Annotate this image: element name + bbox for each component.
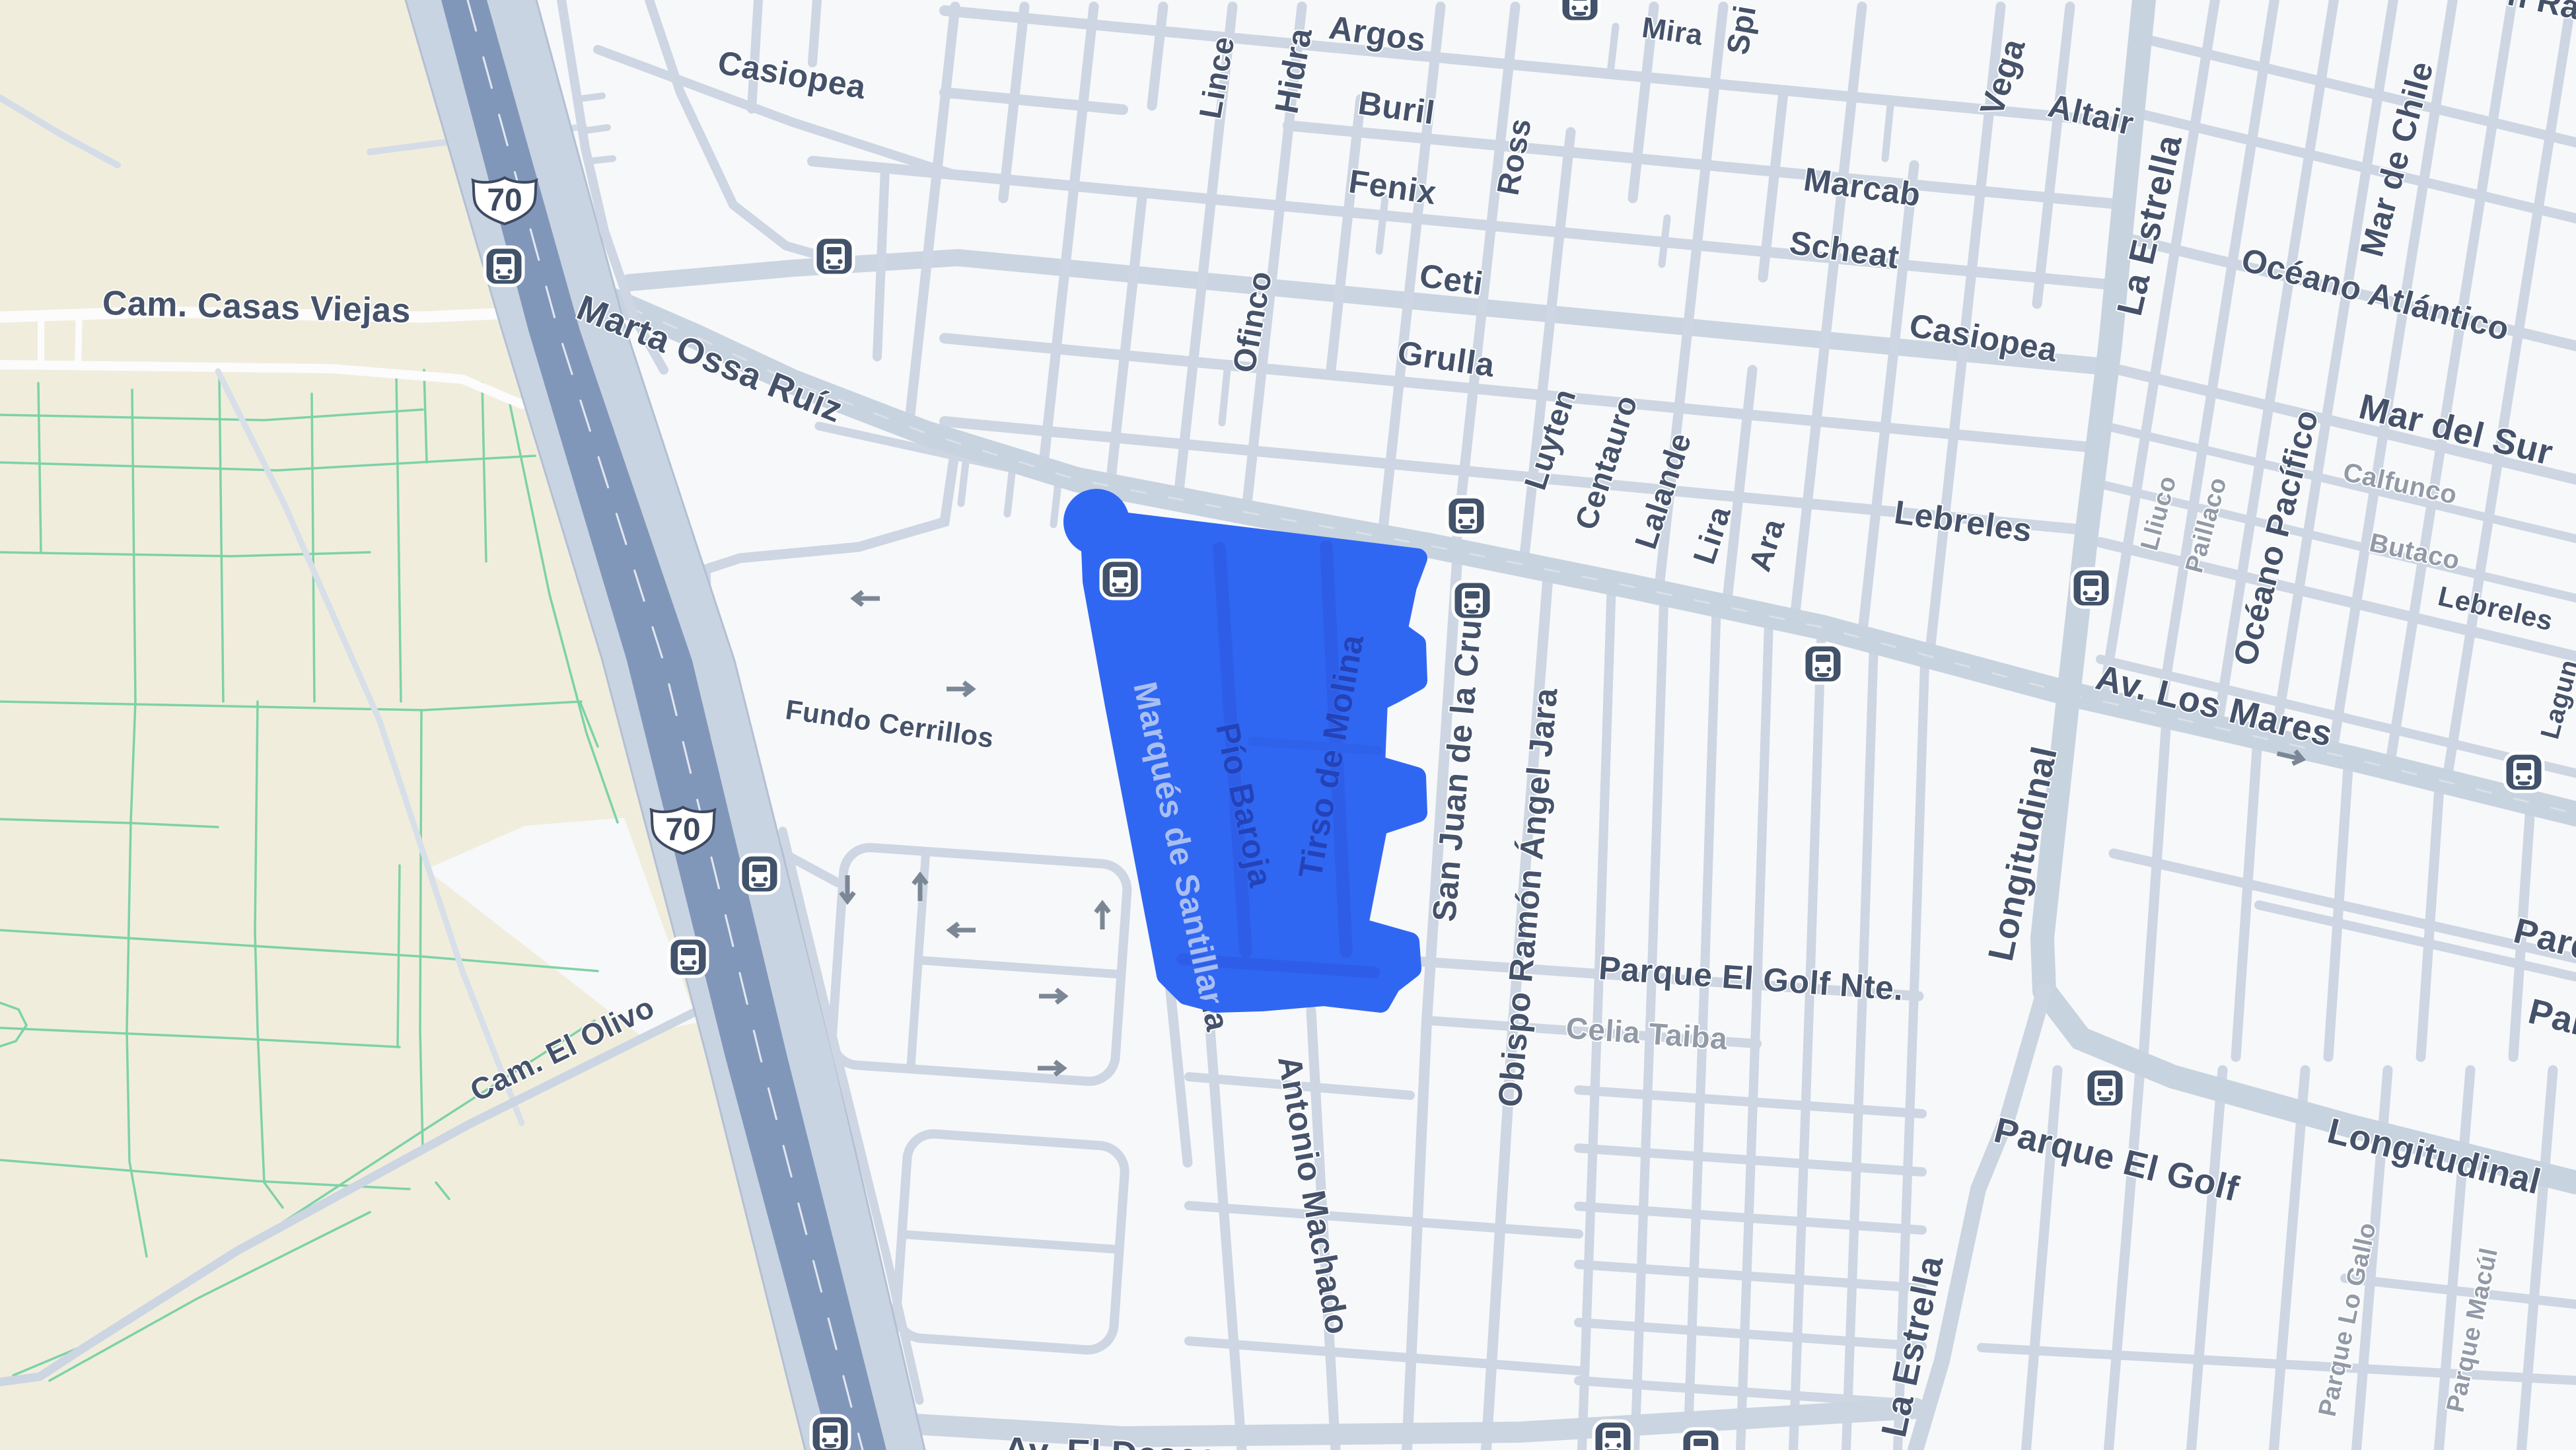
svg-text:Cam. Casas Viejas: Cam. Casas Viejas: [102, 284, 411, 330]
